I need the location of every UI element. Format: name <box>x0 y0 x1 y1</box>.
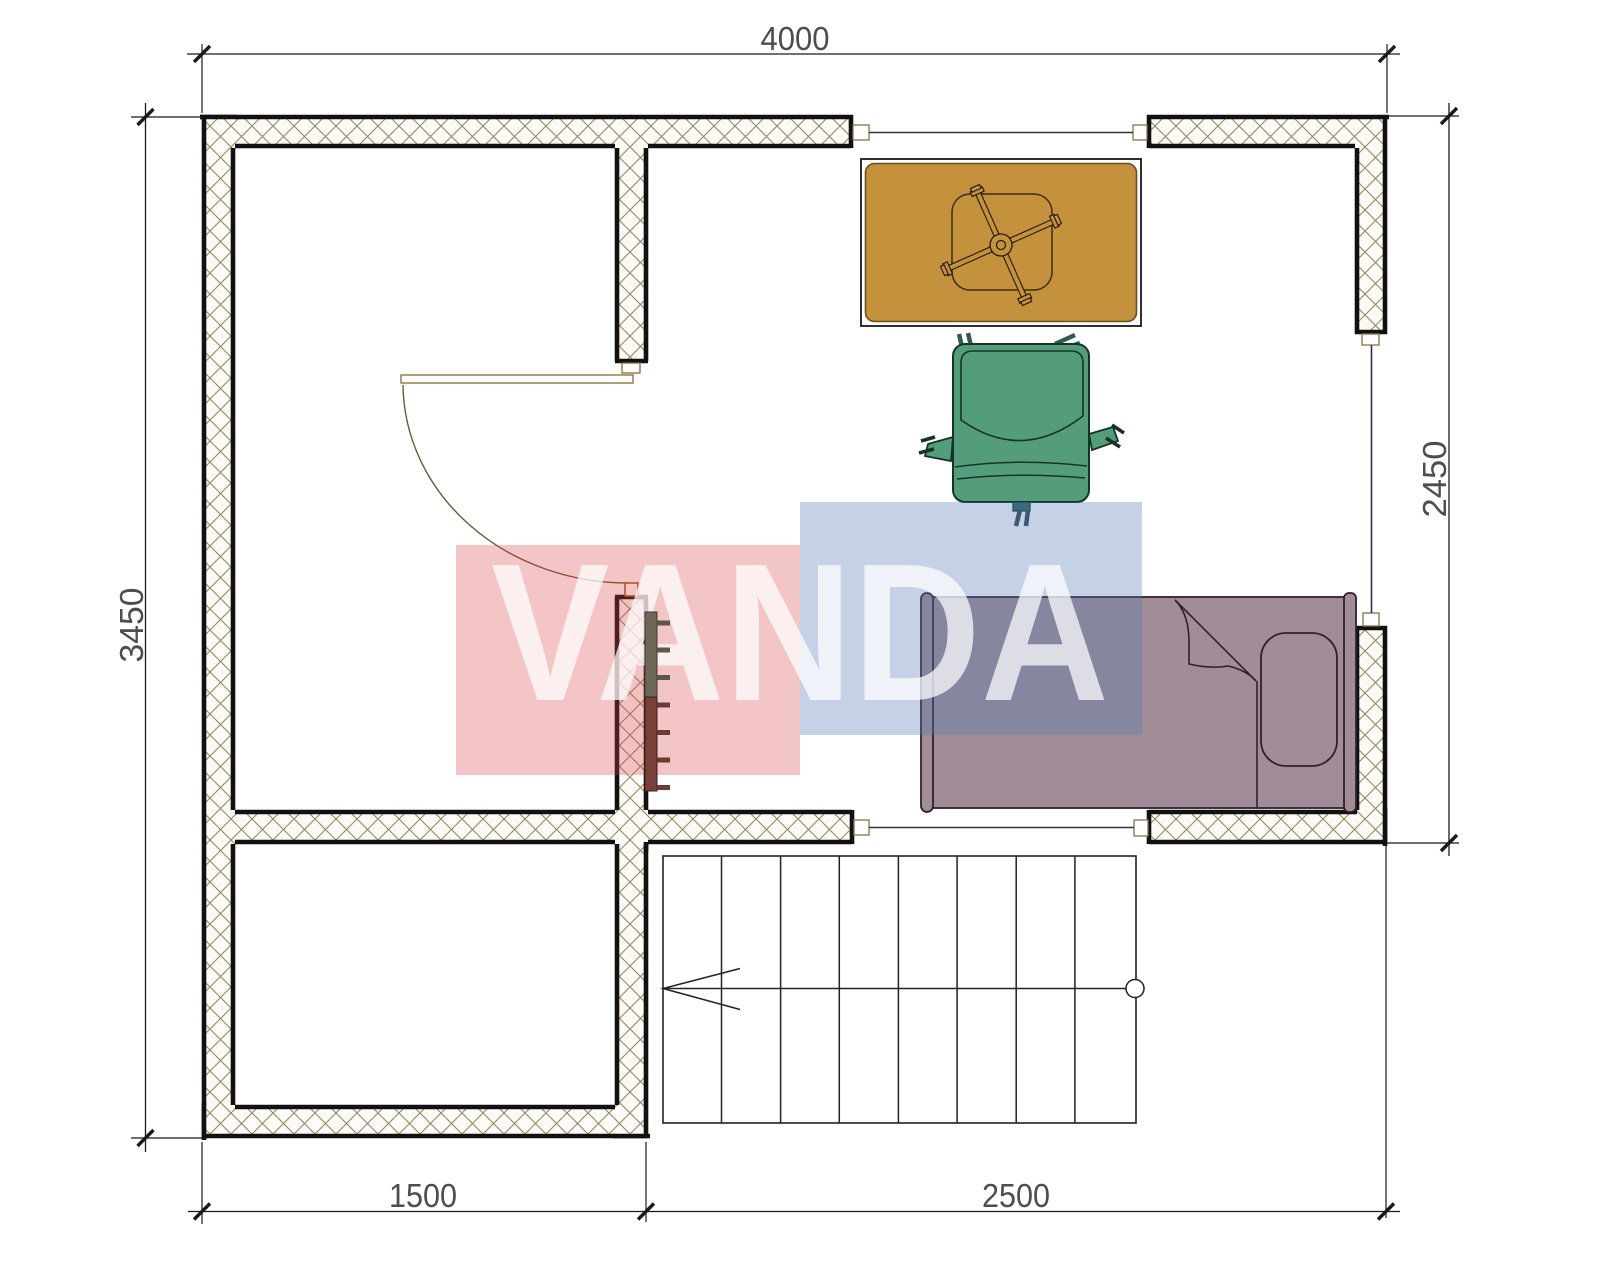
svg-text:3450: 3450 <box>113 588 150 663</box>
svg-text:2450: 2450 <box>1416 441 1453 518</box>
svg-text:1500: 1500 <box>389 1177 457 1214</box>
svg-text:4000: 4000 <box>761 20 830 57</box>
svg-text:VANDA: VANDA <box>491 523 1109 742</box>
svg-text:2500: 2500 <box>982 1177 1050 1214</box>
